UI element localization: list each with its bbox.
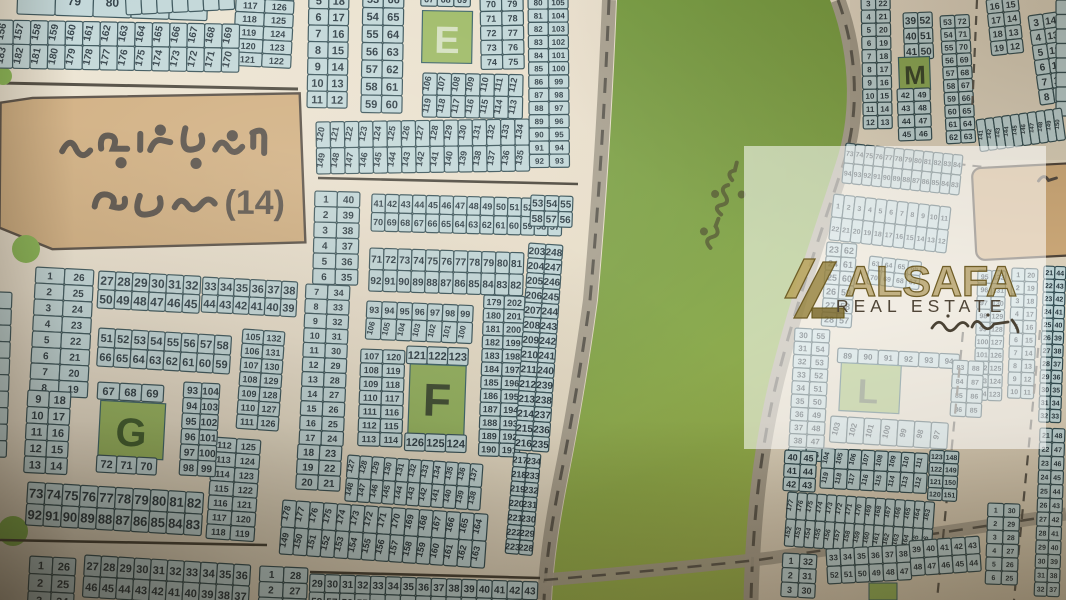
svg-text:REAL ESTATE: REAL ESTATE [836, 296, 1006, 316]
